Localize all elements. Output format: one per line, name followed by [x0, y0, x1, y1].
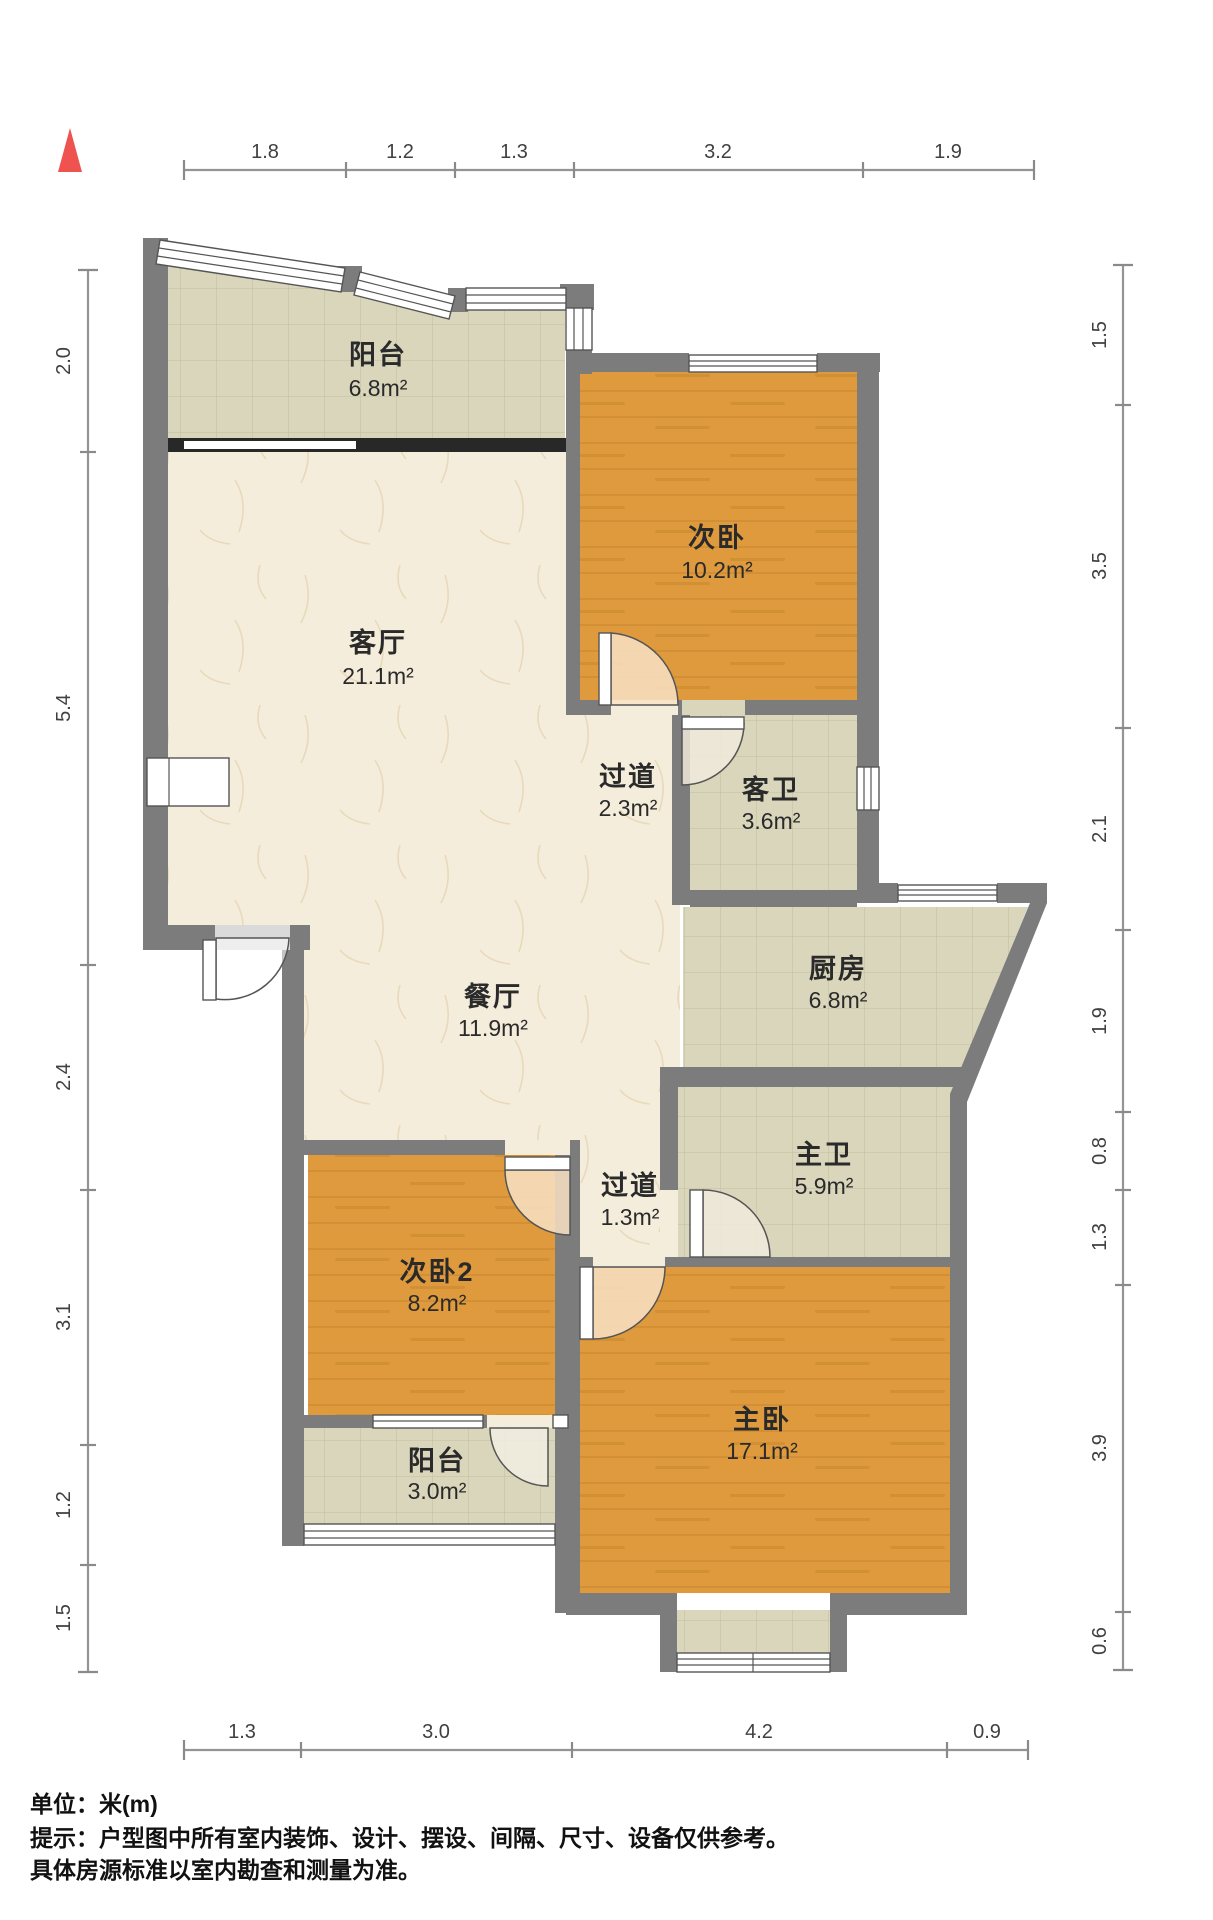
dim-right-5: 1.3: [1089, 1223, 1111, 1251]
dim-top-2: 1.3: [500, 141, 528, 163]
room-label-hallway2: 过道: [601, 1170, 659, 1201]
room-label-bedroom2: 次卧2: [399, 1257, 474, 1287]
dimension-right: 1.5 3.5 2.1 1.9 0.8 1.3 3.9 0.6: [1089, 265, 1133, 1670]
entry-door: [203, 938, 289, 1000]
dim-left-2: 2.4: [53, 1063, 75, 1091]
dim-left-1: 5.4: [53, 694, 75, 722]
dim-right-3: 1.9: [1089, 1007, 1111, 1035]
note-tip-line2: 具体房源标准以室内勘查和测量为准。: [30, 1857, 421, 1883]
note-tip-line1: 提示：户型图中所有室内装饰、设计、摆设、间隔、尺寸、设备仅供参考。: [30, 1825, 789, 1851]
dim-right-4: 0.8: [1089, 1137, 1111, 1165]
footnotes: 单位：米(m) 提示：户型图中所有室内装饰、设计、摆设、间隔、尺寸、设备仅供参考…: [30, 1791, 789, 1883]
bay-window: [677, 1653, 830, 1672]
room-label-living: 客厅: [349, 627, 407, 658]
dim-right-1: 3.5: [1089, 552, 1111, 580]
room-area-bedroom1: 10.2m²: [681, 557, 753, 583]
room-area-balcony-top: 6.8m²: [349, 375, 408, 401]
room-area-hallway1: 2.3m²: [599, 795, 658, 821]
balcony-window-band-4: [566, 308, 592, 350]
room-area-bath-master: 5.9m²: [795, 1173, 854, 1199]
bedroom2-window: [373, 1415, 483, 1428]
note-unit: 单位：米(m): [30, 1791, 158, 1817]
dim-top-3: 3.2: [704, 141, 732, 163]
room-area-balcony-bottom: 3.0m²: [408, 1478, 467, 1504]
room-area-bedroom2: 8.2m²: [408, 1290, 467, 1316]
room-area-hallway2: 1.3m²: [601, 1204, 660, 1230]
balcony-slider-rail: [168, 438, 568, 452]
floor-plan-page: 阳台 6.8m² 次卧 10.2m² 客厅 21.1m² 过道 2.3m² 客卫…: [0, 0, 1213, 1920]
dim-left-3: 3.1: [53, 1303, 75, 1331]
room-label-balcony-bottom: 阳台: [408, 1445, 466, 1476]
room-area-dining: 11.9m²: [458, 1015, 528, 1041]
dim-bottom-0: 1.3: [228, 1721, 256, 1743]
dim-bottom-2: 4.2: [745, 1721, 773, 1743]
room-area-bath-guest: 3.6m²: [742, 808, 801, 834]
dim-right-6: 3.9: [1089, 1434, 1111, 1462]
room-label-bedroom1: 次卧: [688, 523, 746, 553]
bay-window-floor: [677, 1610, 830, 1653]
dim-top-4: 1.9: [934, 141, 962, 163]
dimension-left: 2.0 5.4 2.4 3.1 1.2 1.5: [53, 270, 98, 1672]
bath-guest-window: [857, 767, 879, 810]
room-label-master: 主卧: [733, 1405, 791, 1435]
room-label-balcony-top: 阳台: [349, 339, 407, 370]
balcony-bottom-window: [304, 1524, 555, 1545]
dim-top-1: 1.2: [386, 141, 414, 163]
kitchen-window: [898, 885, 997, 901]
dim-left-0: 2.0: [53, 347, 75, 375]
dim-bottom-1: 3.0: [422, 1721, 450, 1743]
room-area-living: 21.1m²: [342, 663, 414, 689]
north-arrow-icon: [58, 128, 82, 172]
dimension-bottom: 1.3 3.0 4.2 0.9: [184, 1721, 1028, 1760]
dim-top-0: 1.8: [251, 141, 279, 163]
dim-right-7: 0.6: [1089, 1627, 1111, 1655]
room-label-bath-guest: 客卫: [742, 774, 800, 805]
balcony-window-band-3: [466, 288, 566, 310]
room-label-bath-master: 主卫: [795, 1140, 853, 1170]
living-left-window: [147, 758, 229, 806]
bedroom1-window: [689, 355, 817, 372]
dim-bottom-3: 0.9: [973, 1721, 1001, 1743]
room-label-dining: 餐厅: [464, 982, 522, 1012]
room-label-hallway1: 过道: [599, 761, 657, 792]
dim-right-0: 1.5: [1089, 321, 1111, 349]
room-label-kitchen: 厨房: [809, 954, 867, 984]
dim-left-4: 1.2: [53, 1491, 75, 1519]
room-area-kitchen: 6.8m²: [809, 987, 868, 1013]
dim-left-5: 1.5: [53, 1604, 75, 1632]
dim-right-2: 2.1: [1089, 815, 1111, 843]
dimension-top: 1.8 1.2 1.3 3.2 1.9: [184, 141, 1034, 180]
floor-plan-canvas: 阳台 6.8m² 次卧 10.2m² 客厅 21.1m² 过道 2.3m² 客卫…: [0, 0, 1213, 1920]
room-area-master: 17.1m²: [726, 1438, 798, 1464]
